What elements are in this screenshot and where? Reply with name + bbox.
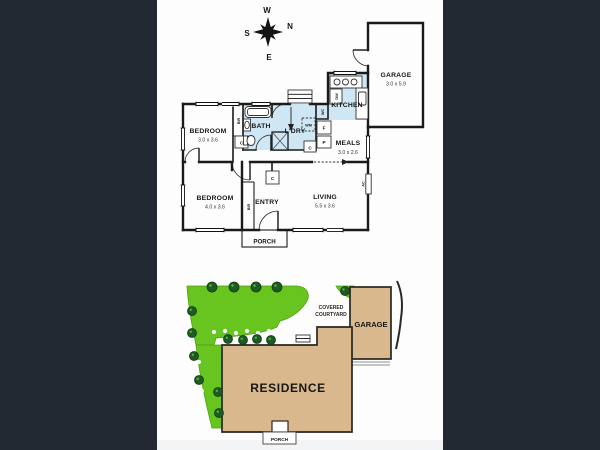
laundry-label: L'DRY (285, 128, 306, 135)
site-garage-label: GARAGE (355, 320, 388, 329)
pantry-label: P (322, 140, 325, 145)
window (196, 228, 224, 233)
garage-dims: 3.0 x 5.9 (386, 82, 406, 88)
covered-courtyard-line1: COVERED (319, 305, 344, 311)
compass-north: N (287, 22, 293, 31)
screenshot: W N S E BIR (0, 0, 600, 450)
meals-dims: 3.0 x 2.6 (338, 150, 358, 156)
kitchen-label: KITCHEN (331, 102, 363, 109)
bedroom2-dims: 4.0 x 3.6 (205, 205, 225, 211)
dishwasher-label: DW (335, 93, 339, 100)
window (222, 102, 239, 107)
air-conditioner-label: AC (362, 181, 366, 187)
compass-south: S (244, 29, 250, 38)
site-porch-label: PORCH (271, 437, 289, 443)
washing-machine-label: WM (305, 123, 312, 127)
compass-east: E (266, 53, 272, 62)
air-conditioner-box (366, 174, 371, 194)
floorplan-image: W N S E BIR (0, 0, 600, 450)
window (334, 71, 356, 76)
window (181, 185, 186, 206)
bir-label-1: BIR (237, 117, 241, 124)
bedroom2-label: BEDROOM (197, 195, 234, 202)
compass-west: W (263, 6, 271, 15)
toilet-bowl (247, 136, 255, 146)
covered-courtyard-line2: COURTYARD (315, 312, 347, 318)
bottom-strip (157, 440, 443, 450)
porch-label: PORCH (253, 239, 276, 246)
entry-label: ENTRY (255, 199, 279, 206)
bedroom1-dims: 3.0 x 3.6 (198, 138, 218, 144)
site-porch-notch (272, 421, 288, 432)
window (293, 228, 323, 233)
bedroom1-label: BEDROOM (190, 128, 227, 135)
garage-label: GARAGE (380, 72, 411, 79)
window (196, 102, 218, 107)
fridge-label: F (323, 126, 326, 131)
living-dims: 5.5 x 3.6 (315, 204, 335, 210)
window (181, 128, 186, 150)
bath-label: BATH (251, 123, 270, 130)
window (327, 228, 343, 233)
wc-label: WC (321, 109, 325, 116)
window (366, 136, 371, 158)
window (252, 102, 270, 107)
bir-label-2: BIR (247, 203, 251, 210)
meals-label: MEALS (336, 140, 361, 147)
site-residence-label: RESIDENCE (250, 381, 325, 395)
living-label: LIVING (313, 194, 337, 201)
